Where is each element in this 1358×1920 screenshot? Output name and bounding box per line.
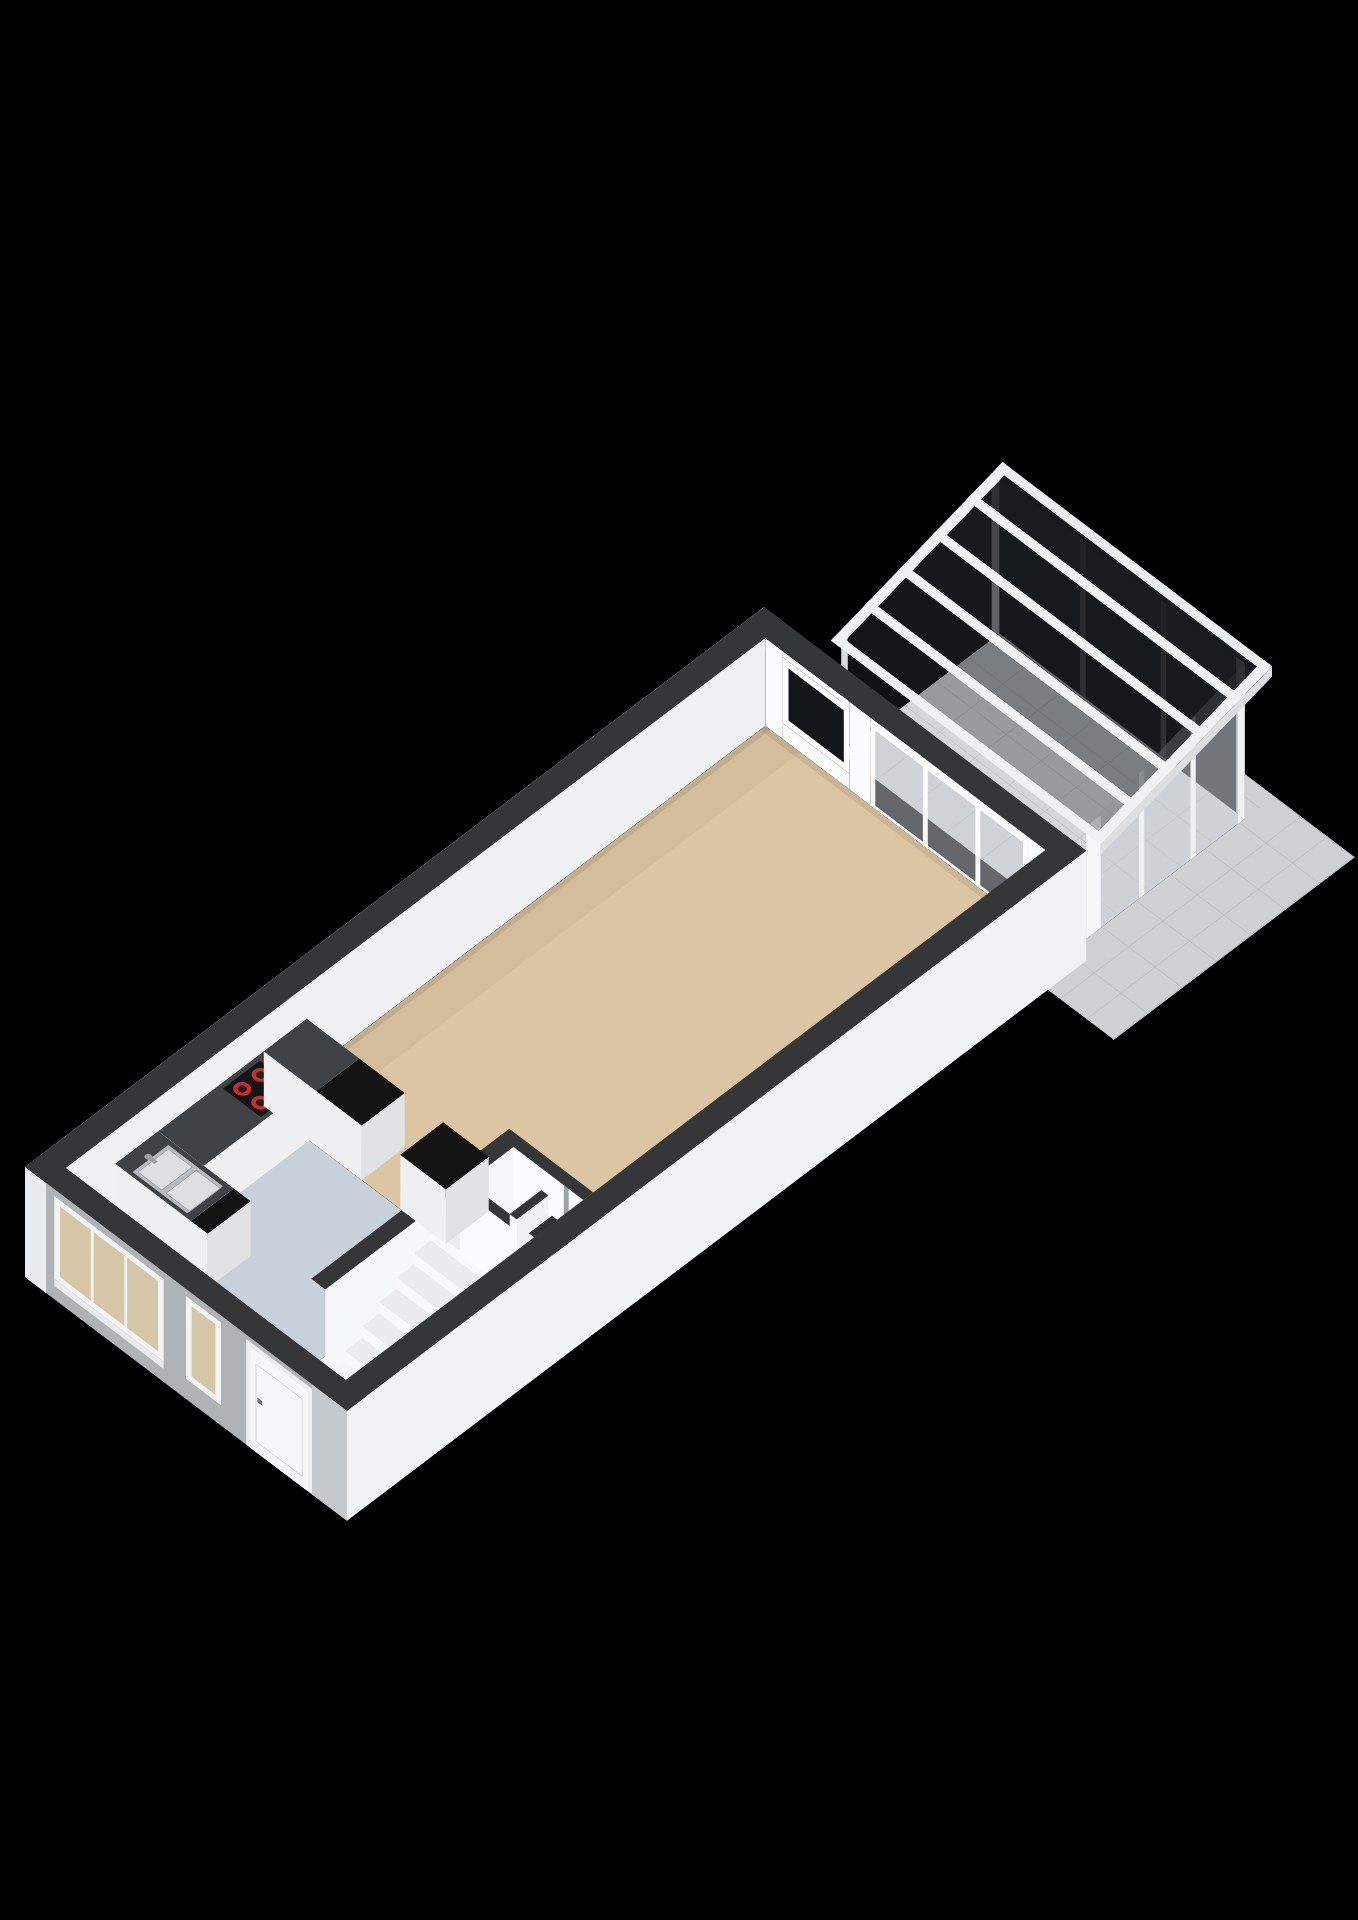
render-canvas	[0, 0, 1358, 1920]
floorplan-3d-render	[0, 0, 1358, 1920]
